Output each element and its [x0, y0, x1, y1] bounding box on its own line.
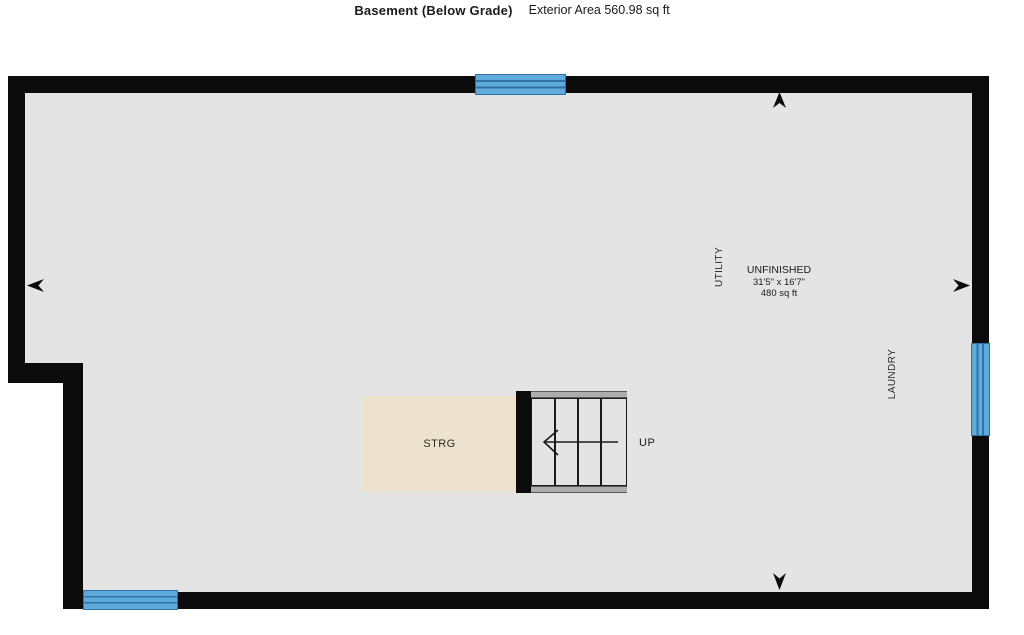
stair-direction-arrow — [531, 391, 627, 494]
stair-side-wall — [516, 391, 531, 493]
wall-left-lower — [63, 363, 83, 609]
wall-left-upper — [8, 76, 25, 383]
dart-arrow-right-icon — [953, 279, 970, 292]
storage-room-label: STRG — [423, 438, 455, 450]
page-title: Basement (Below Grade) — [354, 3, 512, 18]
wall-bottom — [63, 592, 989, 609]
window-right-icon — [971, 343, 990, 436]
window-top-icon — [475, 74, 566, 95]
plan-title-bar: Basement (Below Grade) Exterior Area 560… — [0, 1, 1024, 19]
laundry-room-label: LAUNDRY — [883, 344, 903, 404]
floor-area-upper — [22, 90, 974, 366]
utility-room-label: UTILITY — [710, 242, 730, 292]
window-bottom-icon — [83, 590, 178, 610]
stair-up-label: UP — [639, 437, 655, 449]
dart-arrow-down-icon — [773, 573, 786, 590]
dart-arrow-up-icon — [773, 92, 786, 108]
dart-arrow-left-icon — [27, 279, 44, 292]
exterior-area-label: Exterior Area 560.98 sq ft — [529, 3, 670, 17]
storage-room: STRG — [362, 396, 517, 491]
